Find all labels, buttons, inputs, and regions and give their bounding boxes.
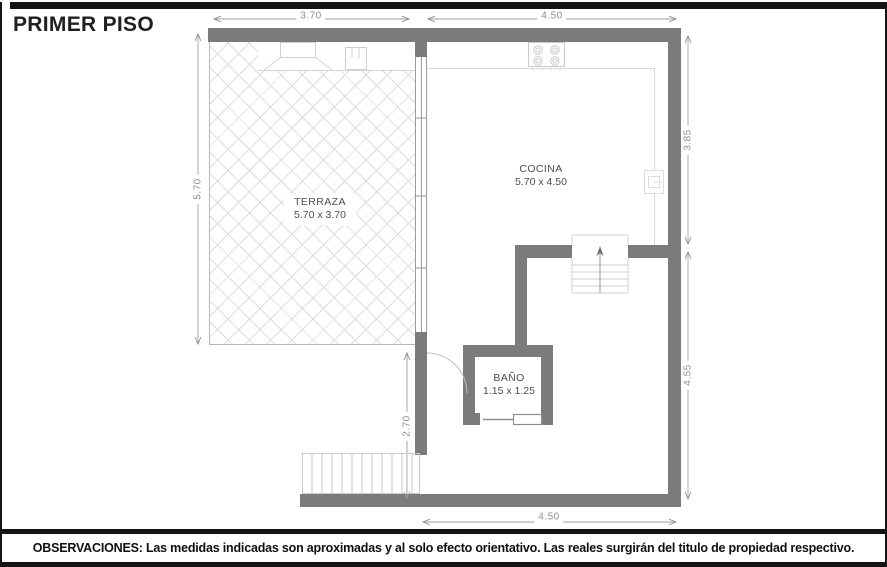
dimension-inner-passage: 2.70 <box>402 411 413 440</box>
cocina-name: COCINA <box>515 163 567 176</box>
dimension-lines <box>198 19 688 522</box>
kitchen-counter-lines <box>427 69 655 246</box>
door-swing-arc <box>427 353 467 393</box>
water-heater-icon <box>645 171 664 194</box>
dimension-right-upper: 3.85 <box>683 125 694 154</box>
dimension-right-lower: 4.55 <box>683 360 694 389</box>
dimension-left-terraza: 5.70 <box>193 174 204 203</box>
dimension-top-cocina: 4.50 <box>537 11 566 22</box>
cocina-label: COCINA 5.70 x 4.50 <box>515 163 567 189</box>
bano-label: BAÑO 1.15 x 1.25 <box>483 372 535 398</box>
floorplan-page: PRIMER PISO <box>0 0 887 567</box>
cocina-size: 5.70 x 4.50 <box>515 176 567 189</box>
grill-icon <box>264 43 367 71</box>
dimension-top-terraza: 3.70 <box>296 11 325 22</box>
plan-linework <box>0 0 887 567</box>
observations-text: OBSERVACIONES: Las medidas indicadas son… <box>0 534 887 562</box>
dimension-bottom-cocina: 4.50 <box>534 512 563 523</box>
terraza-size: 5.70 x 3.70 <box>294 209 346 222</box>
terraza-label: TERRAZA 5.70 x 3.70 <box>284 193 356 225</box>
bano-size: 1.15 x 1.25 <box>483 385 535 398</box>
terraza-name: TERRAZA <box>294 196 346 209</box>
stove-icon <box>529 43 565 72</box>
staircase-bottom <box>303 454 420 494</box>
bano-name: BAÑO <box>483 372 535 385</box>
window-mullions <box>415 118 426 268</box>
bathroom-vanity <box>514 415 542 425</box>
